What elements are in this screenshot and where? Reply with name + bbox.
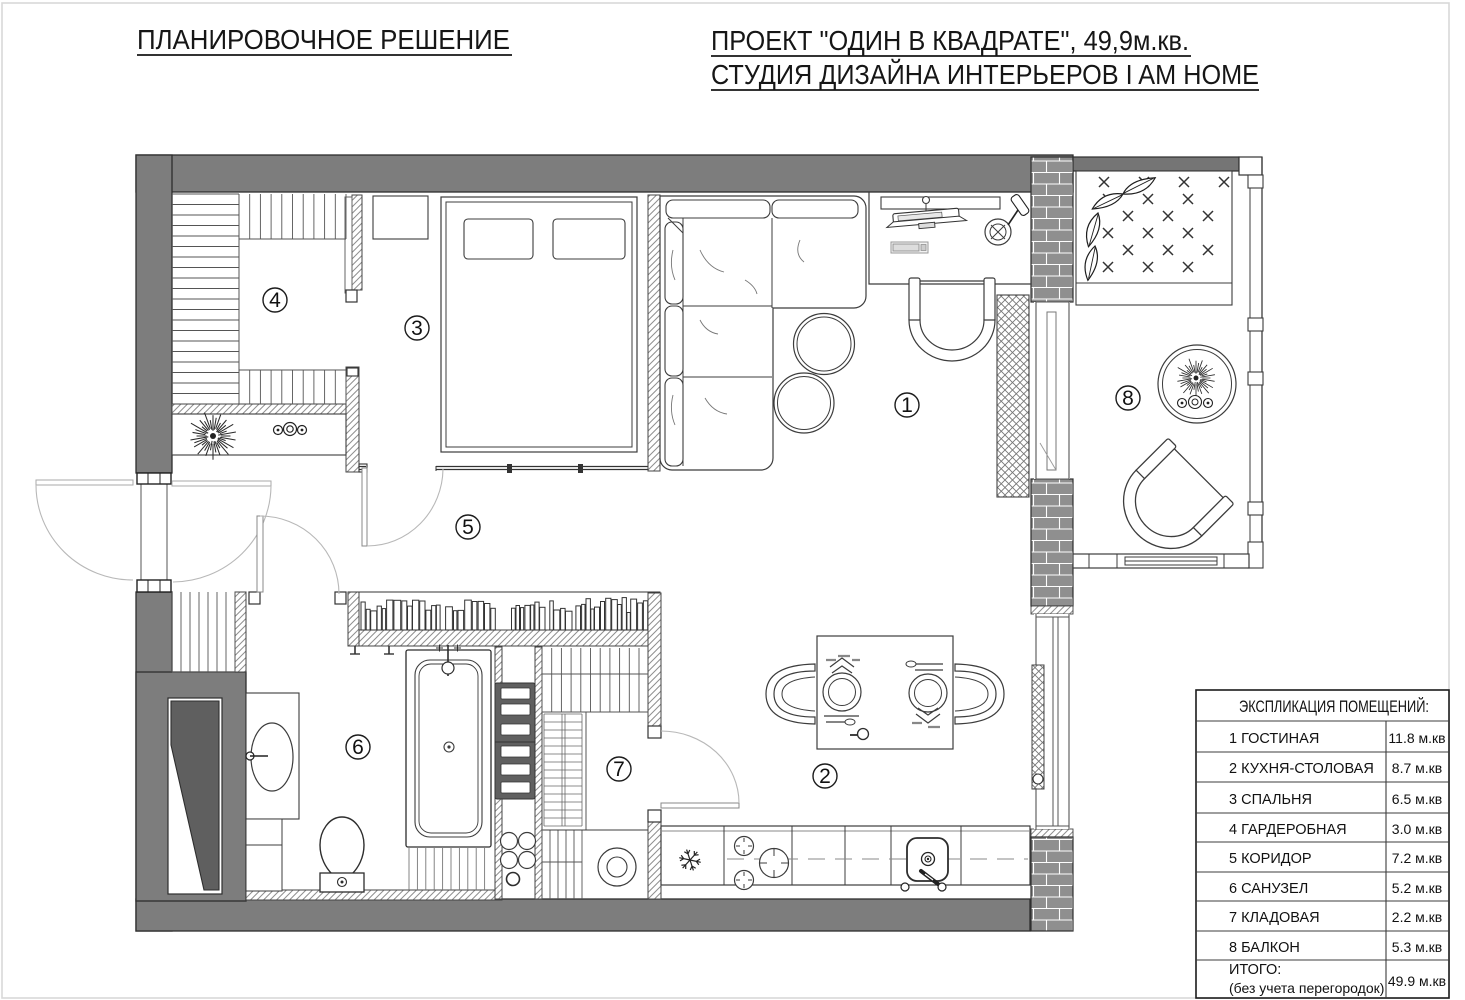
svg-text:ПРОЕКТ "ОДИН В КВАДРАТЕ", 49,9: ПРОЕКТ "ОДИН В КВАДРАТЕ", 49,9м.кв. (711, 25, 1189, 56)
svg-text:5.3 м.кв: 5.3 м.кв (1392, 939, 1442, 955)
svg-text:6 САНУЗЕЛ: 6 САНУЗЕЛ (1229, 881, 1308, 897)
svg-text:2 КУХНЯ-СТОЛОВАЯ: 2 КУХНЯ-СТОЛОВАЯ (1229, 761, 1374, 777)
svg-text:(без учета перегородок): (без учета перегородок) (1229, 980, 1384, 996)
svg-text:7.2 м.кв: 7.2 м.кв (1392, 850, 1442, 866)
svg-text:7: 7 (613, 758, 625, 781)
svg-text:7 КЛАДОВАЯ: 7 КЛАДОВАЯ (1229, 910, 1320, 926)
svg-text:5: 5 (462, 516, 474, 539)
svg-text:1: 1 (901, 394, 913, 417)
svg-text:ПЛАНИРОВОЧНОЕ РЕШЕНИЕ: ПЛАНИРОВОЧНОЕ РЕШЕНИЕ (137, 24, 510, 55)
svg-text:2: 2 (819, 765, 831, 788)
svg-text:4 ГАРДЕРОБНАЯ: 4 ГАРДЕРОБНАЯ (1229, 822, 1347, 838)
svg-text:ИТОГО:: ИТОГО: (1229, 962, 1281, 978)
svg-text:6.5 м.кв: 6.5 м.кв (1392, 791, 1442, 807)
svg-text:11.8 м.кв: 11.8 м.кв (1388, 730, 1445, 746)
svg-text:2.2 м.кв: 2.2 м.кв (1392, 909, 1442, 925)
svg-text:3.0 м.кв: 3.0 м.кв (1392, 821, 1442, 837)
svg-text:8.7 м.кв: 8.7 м.кв (1392, 760, 1442, 776)
svg-text:49.9 м.кв: 49.9 м.кв (1388, 973, 1446, 989)
svg-text:СТУДИЯ ДИЗАЙНА ИНТЕРЬЕРОВ I AM: СТУДИЯ ДИЗАЙНА ИНТЕРЬЕРОВ I AM HOME (711, 59, 1259, 90)
svg-text:8: 8 (1122, 387, 1134, 410)
svg-text:4: 4 (269, 289, 281, 312)
svg-text:6: 6 (352, 736, 364, 759)
svg-text:5 КОРИДОР: 5 КОРИДОР (1229, 851, 1312, 867)
svg-text:1 ГОСТИНАЯ: 1 ГОСТИНАЯ (1229, 731, 1319, 747)
svg-text:3: 3 (411, 317, 423, 340)
svg-text:5.2 м.кв: 5.2 м.кв (1392, 880, 1442, 896)
svg-text:8 БАЛКОН: 8 БАЛКОН (1229, 940, 1300, 956)
svg-text:ЭКСПЛИКАЦИЯ ПОМЕЩЕНИЙ:: ЭКСПЛИКАЦИЯ ПОМЕЩЕНИЙ: (1239, 697, 1429, 716)
svg-text:3 СПАЛЬНЯ: 3 СПАЛЬНЯ (1229, 792, 1312, 808)
